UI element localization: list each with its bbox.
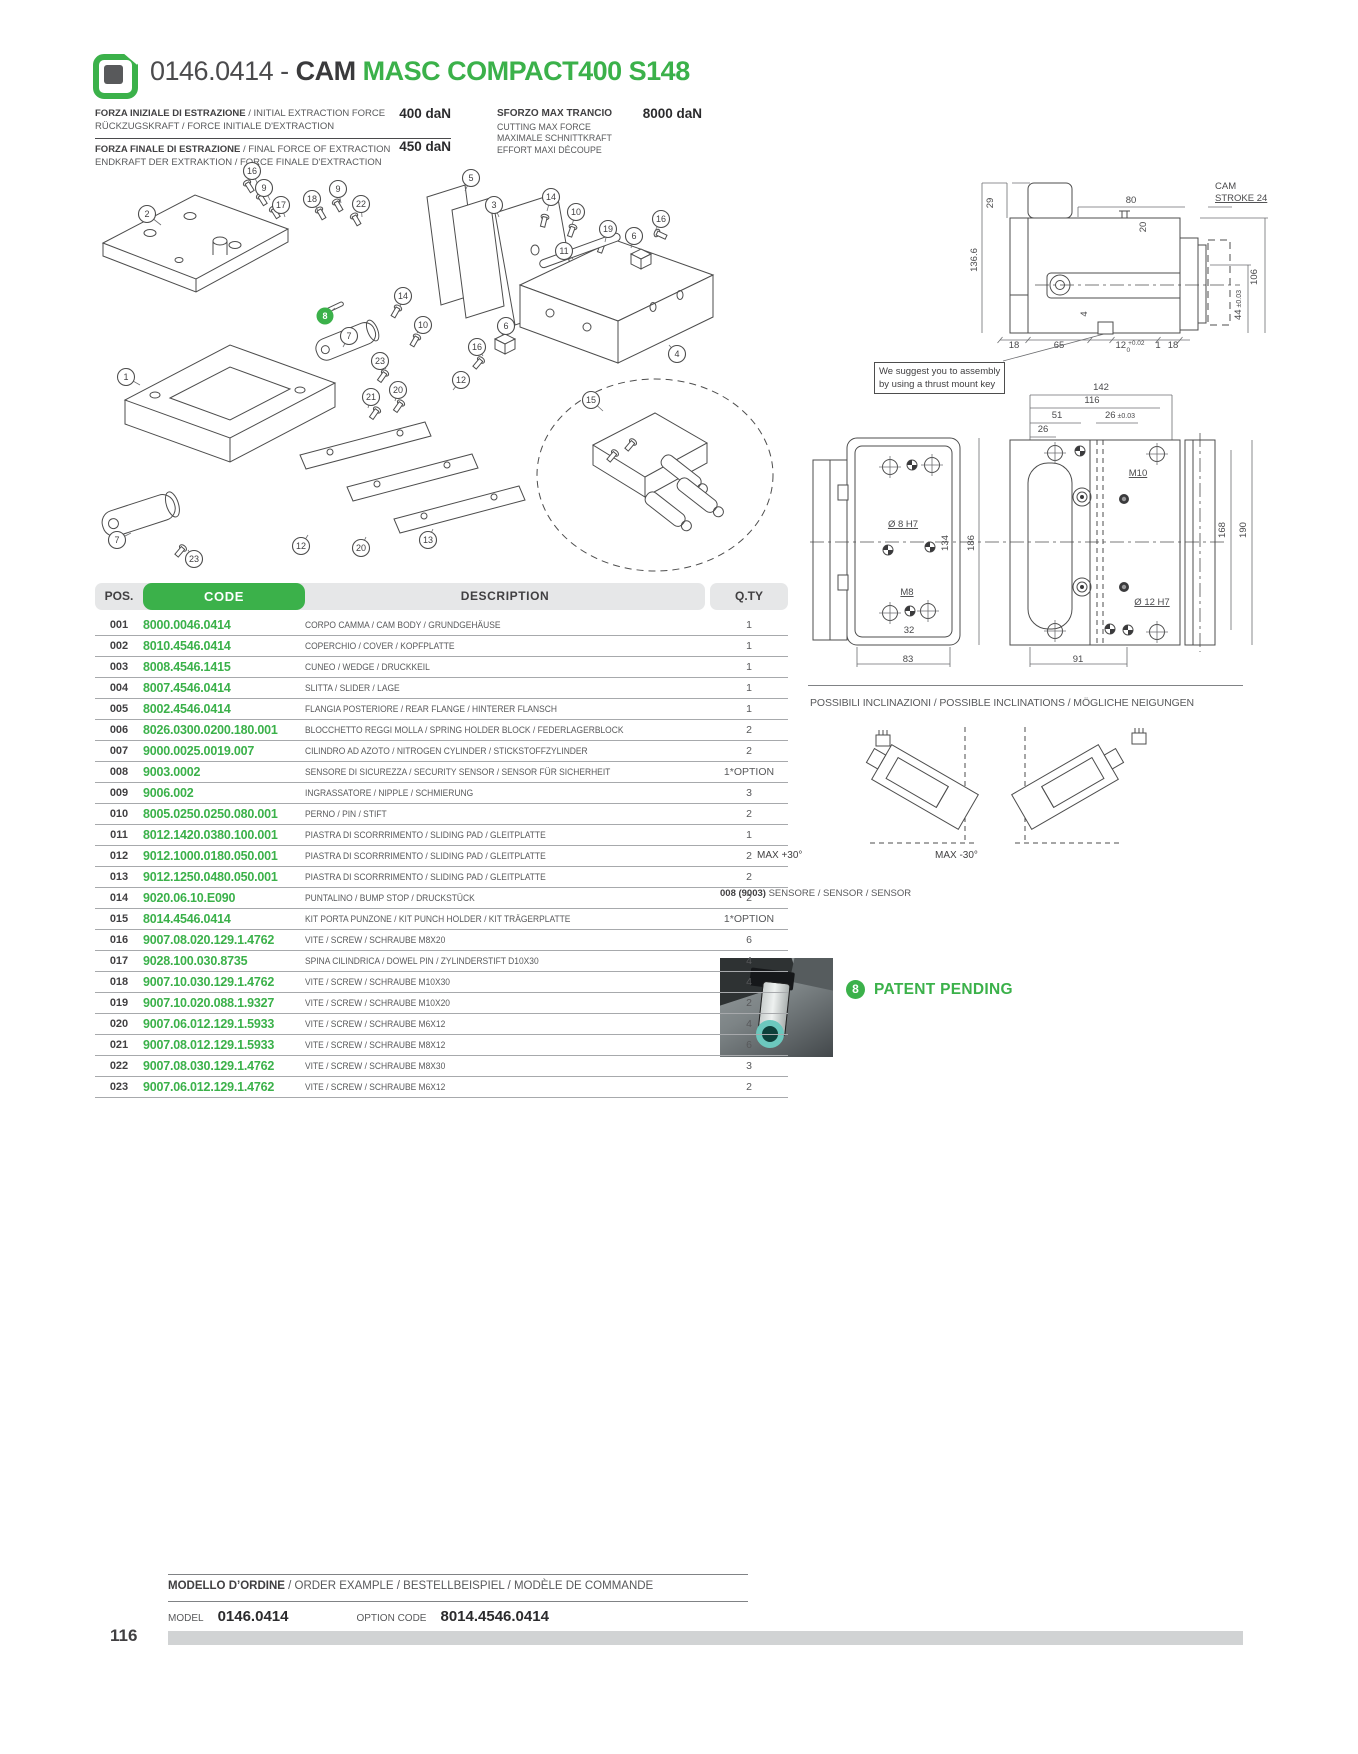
- cell-qty: 2: [710, 808, 788, 820]
- footer-bar: [168, 1631, 1243, 1645]
- header-qty: Q.TY: [710, 583, 788, 610]
- cell-pos: 012: [95, 850, 143, 862]
- table-row: 0149020.06.10.E090PUNTALINO / BUMP STOP …: [95, 888, 788, 909]
- initial-force-value: 400 daN: [399, 108, 451, 121]
- cell-qty: 1: [710, 682, 788, 694]
- svg-text:12+0.020: 12+0.020: [1115, 340, 1144, 354]
- initial-force-row: FORZA INIZIALE DI ESTRAZIONE / INITIAL E…: [95, 106, 451, 138]
- product-type: CAM: [296, 56, 356, 86]
- cutting-force-value: 8000 daN: [643, 108, 702, 120]
- cell-code: 9020.06.10.E090: [143, 891, 305, 905]
- svg-text:14: 14: [398, 291, 408, 301]
- svg-text:M10: M10: [1129, 468, 1147, 479]
- cell-description: COPERCHIO / COVER / KOPFPLATTE: [305, 641, 694, 651]
- svg-text:13: 13: [423, 535, 433, 545]
- cell-qty: 2: [710, 1081, 788, 1093]
- svg-text:3: 3: [491, 200, 496, 210]
- cutting-force-label-de: MAXIMALE SCHNITTKRAFT: [497, 133, 702, 145]
- cell-pos: 020: [95, 1018, 143, 1030]
- cell-description: SLITTA / SLIDER / LAGE: [305, 683, 694, 693]
- cell-qty: 3: [710, 1060, 788, 1072]
- svg-text:22: 22: [356, 199, 366, 209]
- cell-qty: 1: [710, 640, 788, 652]
- cell-code: 9007.08.030.129.1.4762: [143, 1059, 305, 1073]
- cell-pos: 002: [95, 640, 143, 652]
- cell-pos: 008: [95, 766, 143, 778]
- page-title: 0146.0414 -CAMMASC COMPACT400 S148: [150, 56, 690, 87]
- cell-code: 9028.100.030.8735: [143, 954, 305, 968]
- cell-code: 8000.0046.0414: [143, 618, 305, 632]
- cell-description: INGRASSATORE / NIPPLE / SCHMIERUNG: [305, 788, 694, 798]
- table-row: 0099006.002INGRASSATORE / NIPPLE / SCHMI…: [95, 783, 788, 804]
- footer-rule-top: [168, 1574, 748, 1575]
- table-row: 0179028.100.030.8735SPINA CILINDRICA / D…: [95, 951, 788, 972]
- cell-description: PIASTRA DI SCORRRIMENTO / SLIDING PAD / …: [305, 830, 694, 840]
- svg-text:7: 7: [114, 535, 119, 545]
- cell-code: 8014.4546.0414: [143, 912, 305, 926]
- cell-pos: 010: [95, 808, 143, 820]
- cell-code: 9007.10.030.129.1.4762: [143, 975, 305, 989]
- cell-qty: 6: [710, 934, 788, 946]
- svg-text:26±0.03: 26±0.03: [1105, 410, 1135, 421]
- cell-qty: 6: [710, 1039, 788, 1051]
- svg-text:16: 16: [656, 214, 666, 224]
- table-row: 0189007.10.030.129.1.4762VITE / SCREW / …: [95, 972, 788, 993]
- cell-pos: 003: [95, 661, 143, 673]
- initial-force-label-en: / INITIAL EXTRACTION FORCE: [246, 108, 386, 119]
- cell-code: 9007.08.020.129.1.4762: [143, 933, 305, 947]
- header-code: CODE: [143, 583, 305, 610]
- cell-code: 9012.1250.0480.050.001: [143, 870, 305, 884]
- svg-text:21: 21: [366, 392, 376, 402]
- cell-pos: 018: [95, 976, 143, 988]
- cell-qty: 4: [710, 976, 788, 988]
- parts-table: CODE POS. DESCRIPTION Q.TY 0018000.0046.…: [95, 583, 788, 1098]
- svg-text:44±0.03: 44±0.03: [1233, 290, 1244, 320]
- table-row: 0079000.0025.0019.007CILINDRO AD AZOTO /…: [95, 741, 788, 762]
- svg-text:23: 23: [375, 356, 385, 366]
- svg-text:5: 5: [468, 173, 473, 183]
- svg-text:1: 1: [1155, 340, 1160, 351]
- cell-code: 8005.0250.0250.080.001: [143, 807, 305, 821]
- svg-text:106: 106: [1249, 269, 1260, 285]
- patent-badge: 8: [846, 980, 865, 999]
- svg-text:16: 16: [472, 342, 482, 352]
- svg-text:26: 26: [1038, 424, 1049, 435]
- cell-description: CUNEO / WEDGE / DRUCKKEIL: [305, 662, 694, 672]
- table-row: 0139012.1250.0480.050.001PIASTRA DI SCOR…: [95, 867, 788, 888]
- cell-pos: 001: [95, 619, 143, 631]
- svg-text:2: 2: [144, 209, 149, 219]
- svg-text:23: 23: [189, 554, 199, 564]
- cell-code: 8012.1420.0380.100.001: [143, 828, 305, 842]
- svg-text:116: 116: [1084, 395, 1099, 406]
- cell-pos: 014: [95, 892, 143, 904]
- table-row: 0229007.08.030.129.1.4762VITE / SCREW / …: [95, 1056, 788, 1077]
- inclinations-drawing: [780, 715, 1200, 855]
- svg-text:20: 20: [393, 385, 403, 395]
- table-row: 0219007.08.012.129.1.5933VITE / SCREW / …: [95, 1035, 788, 1056]
- cell-qty: 1*OPTION: [710, 766, 788, 778]
- model-value: 0146.0414: [218, 1608, 289, 1625]
- inclinations-heading: POSSIBILI INCLINAZIONI / POSSIBLE INCLIN…: [810, 697, 1194, 709]
- front-view-drawing: 1421165126±0.0326M10Ø 8 H7134186M8328391…: [760, 375, 1290, 675]
- side-view-drawing: 29136.68020CAMSTROKE 2410644±0.034186512…: [760, 155, 1290, 370]
- cell-code: 9000.0025.0019.007: [143, 744, 305, 758]
- cell-description: VITE / SCREW / SCHRAUBE M6X12: [305, 1019, 694, 1029]
- svg-text:9: 9: [335, 184, 340, 194]
- cell-qty: 1: [710, 661, 788, 673]
- cell-pos: 022: [95, 1060, 143, 1072]
- svg-text:168: 168: [1217, 522, 1228, 538]
- patent-pending: 8 PATENT PENDING: [846, 980, 1013, 999]
- cell-description: PIASTRA DI SCORRRIMENTO / SLIDING PAD / …: [305, 851, 694, 861]
- svg-text:16: 16: [247, 166, 257, 176]
- cell-description: SENSORE DI SICUREZZA / SECURITY SENSOR /…: [305, 767, 694, 777]
- cell-qty: 1: [710, 829, 788, 841]
- svg-text:32: 32: [904, 625, 915, 636]
- cell-code: 9012.1000.0180.050.001: [143, 849, 305, 863]
- cell-code: 8007.4546.0414: [143, 681, 305, 695]
- cell-pos: 006: [95, 724, 143, 736]
- option-code-label: OPTION CODE: [356, 1613, 426, 1624]
- svg-text:7: 7: [346, 331, 351, 341]
- svg-text:190: 190: [1238, 522, 1249, 538]
- svg-text:142: 142: [1093, 382, 1109, 393]
- header-description: DESCRIPTION: [305, 583, 705, 610]
- patent-text: PATENT PENDING: [874, 981, 1013, 999]
- svg-text:136.6: 136.6: [969, 248, 980, 272]
- initial-force-label-defr: RÜCKZUGSKRAFT / FORCE INITIALE D'EXTRACT…: [95, 121, 334, 132]
- svg-text:8: 8: [322, 311, 327, 321]
- cell-code: 9007.08.012.129.1.5933: [143, 1038, 305, 1052]
- svg-text:12: 12: [296, 541, 306, 551]
- table-row: 0089003.0002SENSORE DI SICUREZZA / SECUR…: [95, 762, 788, 783]
- svg-text:STROKE 24: STROKE 24: [1215, 193, 1267, 204]
- cell-pos: 007: [95, 745, 143, 757]
- cell-code: 9007.06.012.129.1.5933: [143, 1017, 305, 1031]
- table-row: 0058002.4546.0414FLANGIA POSTERIORE / RE…: [95, 699, 788, 720]
- cell-pos: 013: [95, 871, 143, 883]
- table-row: 0239007.06.012.129.1.4762VITE / SCREW / …: [95, 1077, 788, 1098]
- svg-text:80: 80: [1126, 195, 1137, 206]
- cell-description: PERNO / PIN / STIFT: [305, 809, 694, 819]
- svg-text:6: 6: [631, 231, 636, 241]
- order-heading-rest: / ORDER EXAMPLE / BESTELLBEISPIEL / MODÈ…: [285, 1580, 653, 1592]
- svg-text:4: 4: [1079, 311, 1090, 316]
- svg-text:11: 11: [559, 246, 568, 256]
- svg-text:65: 65: [1054, 340, 1065, 351]
- cell-qty: 2: [710, 871, 788, 883]
- svg-text:17: 17: [276, 200, 286, 210]
- cell-pos: 023: [95, 1081, 143, 1093]
- svg-text:20: 20: [356, 543, 366, 553]
- table-row: 0038008.4546.1415CUNEO / WEDGE / DRUCKKE…: [95, 657, 788, 678]
- svg-text:4: 4: [674, 349, 679, 359]
- section-divider: [808, 685, 1243, 686]
- table-row: 0108005.0250.0250.080.001PERNO / PIN / S…: [95, 804, 788, 825]
- svg-text:18: 18: [1009, 340, 1020, 351]
- cell-qty: 3: [710, 787, 788, 799]
- svg-text:M8: M8: [900, 587, 913, 598]
- order-example-row: MODEL 0146.0414 OPTION CODE 8014.4546.04…: [168, 1608, 549, 1625]
- option-code-value: 8014.4546.0414: [440, 1608, 548, 1625]
- page-number: 116: [110, 1626, 137, 1646]
- svg-text:15: 15: [586, 395, 596, 405]
- svg-text:6: 6: [503, 321, 508, 331]
- brand-logo: [93, 54, 138, 99]
- cutting-force-label-en: CUTTING MAX FORCE: [497, 122, 702, 134]
- photo-mount-block: [789, 958, 833, 994]
- final-force-value: 450 daN: [399, 141, 451, 154]
- cell-qty: 2: [710, 997, 788, 1009]
- svg-text:20: 20: [1138, 222, 1149, 233]
- cell-qty: 2: [710, 892, 788, 904]
- svg-text:83: 83: [903, 654, 914, 665]
- order-example-heading: MODELLO D’ORDINE / ORDER EXAMPLE / BESTE…: [168, 1580, 653, 1592]
- cell-code: 8010.4546.0414: [143, 639, 305, 653]
- table-row: 0048007.4546.0414SLITTA / SLIDER / LAGE1: [95, 678, 788, 699]
- exploded-view-drawing: 2169171892253141019616118141076162312202…: [95, 155, 790, 580]
- order-heading-bold: MODELLO D’ORDINE: [168, 1580, 285, 1592]
- table-row: 0209007.06.012.129.1.5933VITE / SCREW / …: [95, 1014, 788, 1035]
- cell-pos: 005: [95, 703, 143, 715]
- header-pos: POS.: [95, 583, 143, 610]
- svg-text:Ø 8 H7: Ø 8 H7: [888, 519, 918, 530]
- svg-text:51: 51: [1052, 410, 1063, 421]
- svg-text:1: 1: [123, 372, 128, 382]
- cell-qty: 1: [710, 703, 788, 715]
- table-row: 0018000.0046.0414CORPO CAMMA / CAM BODY …: [95, 615, 788, 636]
- product-code: 0146.0414 -: [150, 56, 289, 86]
- cell-pos: 017: [95, 955, 143, 967]
- svg-text:Ø 12 H7: Ø 12 H7: [1134, 597, 1169, 608]
- cell-pos: 015: [95, 913, 143, 925]
- cell-code: 9007.06.012.129.1.4762: [143, 1080, 305, 1094]
- cell-description: CORPO CAMMA / CAM BODY / GRUNDGEHÄUSE: [305, 620, 694, 630]
- svg-text:9: 9: [261, 183, 266, 193]
- svg-text:134: 134: [940, 535, 951, 551]
- cell-description: SPINA CILINDRICA / DOWEL PIN / ZYLINDERS…: [305, 956, 694, 966]
- cutting-force-specs: SFORZO MAX TRANCIO CUTTING MAX FORCE MAX…: [497, 108, 702, 156]
- product-series: MASC COMPACT400 S148: [363, 56, 690, 86]
- svg-text:CAM: CAM: [1215, 181, 1236, 192]
- svg-text:19: 19: [603, 224, 613, 234]
- svg-text:18: 18: [307, 194, 317, 204]
- cell-qty: 2: [710, 745, 788, 757]
- cell-code: 9003.0002: [143, 765, 305, 779]
- cell-description: CILINDRO AD AZOTO / NITROGEN CYLINDER / …: [305, 746, 694, 756]
- cell-pos: 016: [95, 934, 143, 946]
- cell-description: VITE / SCREW / SCHRAUBE M10X20: [305, 998, 694, 1008]
- svg-text:91: 91: [1073, 654, 1084, 665]
- cell-qty: 1: [710, 619, 788, 631]
- footer-rule-mid: [168, 1601, 748, 1602]
- cell-pos: 019: [95, 997, 143, 1009]
- cell-pos: 004: [95, 682, 143, 694]
- table-row: 0068026.0300.0200.180.001BLOCCHETTO REGG…: [95, 720, 788, 741]
- final-force-label-en: / FINAL FORCE OF EXTRACTION: [240, 144, 390, 155]
- exploded-parts-geometry: [99, 179, 773, 571]
- cell-description: BLOCCHETTO REGGI MOLLA / SPRING HOLDER B…: [305, 725, 694, 735]
- cell-description: VITE / SCREW / SCHRAUBE M8X20: [305, 935, 694, 945]
- table-row: 0129012.1000.0180.050.001PIASTRA DI SCOR…: [95, 846, 788, 867]
- cell-code: 8002.4546.0414: [143, 702, 305, 716]
- svg-text:29: 29: [985, 198, 996, 209]
- cell-description: VITE / SCREW / SCHRAUBE M10X30: [305, 977, 694, 987]
- svg-text:18: 18: [1168, 340, 1179, 351]
- brand-logo-icon: [93, 54, 138, 99]
- parts-table-body: 0018000.0046.0414CORPO CAMMA / CAM BODY …: [95, 615, 788, 1098]
- cell-description: VITE / SCREW / SCHRAUBE M6X12: [305, 1082, 694, 1092]
- parts-table-header: CODE POS. DESCRIPTION Q.TY: [95, 583, 788, 610]
- final-force-label-it: FORZA FINALE DI ESTRAZIONE: [95, 144, 240, 155]
- cell-description: VITE / SCREW / SCHRAUBE M8X12: [305, 1040, 694, 1050]
- table-row: 0028010.4546.0414COPERCHIO / COVER / KOP…: [95, 636, 788, 657]
- initial-force-label-it: FORZA INIZIALE DI ESTRAZIONE: [95, 108, 246, 119]
- cell-pos: 011: [95, 829, 143, 841]
- cell-qty: 4: [710, 1018, 788, 1030]
- svg-text:14: 14: [546, 192, 556, 202]
- model-label: MODEL: [168, 1613, 204, 1624]
- cell-qty: 2: [710, 724, 788, 736]
- cell-code: 8026.0300.0200.180.001: [143, 723, 305, 737]
- table-row: 0118012.1420.0380.100.001PIASTRA DI SCOR…: [95, 825, 788, 846]
- table-row: 0199007.10.020.088.1.9327VITE / SCREW / …: [95, 993, 788, 1014]
- max-minus-label: MAX -30°: [935, 850, 978, 861]
- cell-code: 9006.002: [143, 786, 305, 800]
- cell-description: VITE / SCREW / SCHRAUBE M8X30: [305, 1061, 694, 1071]
- cell-description: FLANGIA POSTERIORE / REAR FLANGE / HINTE…: [305, 704, 694, 714]
- svg-text:10: 10: [418, 320, 428, 330]
- cell-description: PUNTALINO / BUMP STOP / DRUCKSTÜCK: [305, 893, 694, 903]
- svg-text:10: 10: [571, 207, 581, 217]
- svg-text:186: 186: [966, 535, 977, 551]
- cell-pos: 009: [95, 787, 143, 799]
- table-row: 0158014.4546.0414KIT PORTA PUNZONE / KIT…: [95, 909, 788, 930]
- cell-qty: 2: [710, 850, 788, 862]
- table-row: 0169007.08.020.129.1.4762VITE / SCREW / …: [95, 930, 788, 951]
- cell-code: 9007.10.020.088.1.9327: [143, 996, 305, 1010]
- cell-qty: 4: [710, 955, 788, 967]
- cell-pos: 021: [95, 1039, 143, 1051]
- cell-description: PIASTRA DI SCORRRIMENTO / SLIDING PAD / …: [305, 872, 694, 882]
- svg-text:12: 12: [456, 375, 466, 385]
- cell-qty: 1*OPTION: [710, 913, 788, 925]
- cell-description: KIT PORTA PUNZONE / KIT PUNCH HOLDER / K…: [305, 914, 694, 924]
- cell-code: 8008.4546.1415: [143, 660, 305, 674]
